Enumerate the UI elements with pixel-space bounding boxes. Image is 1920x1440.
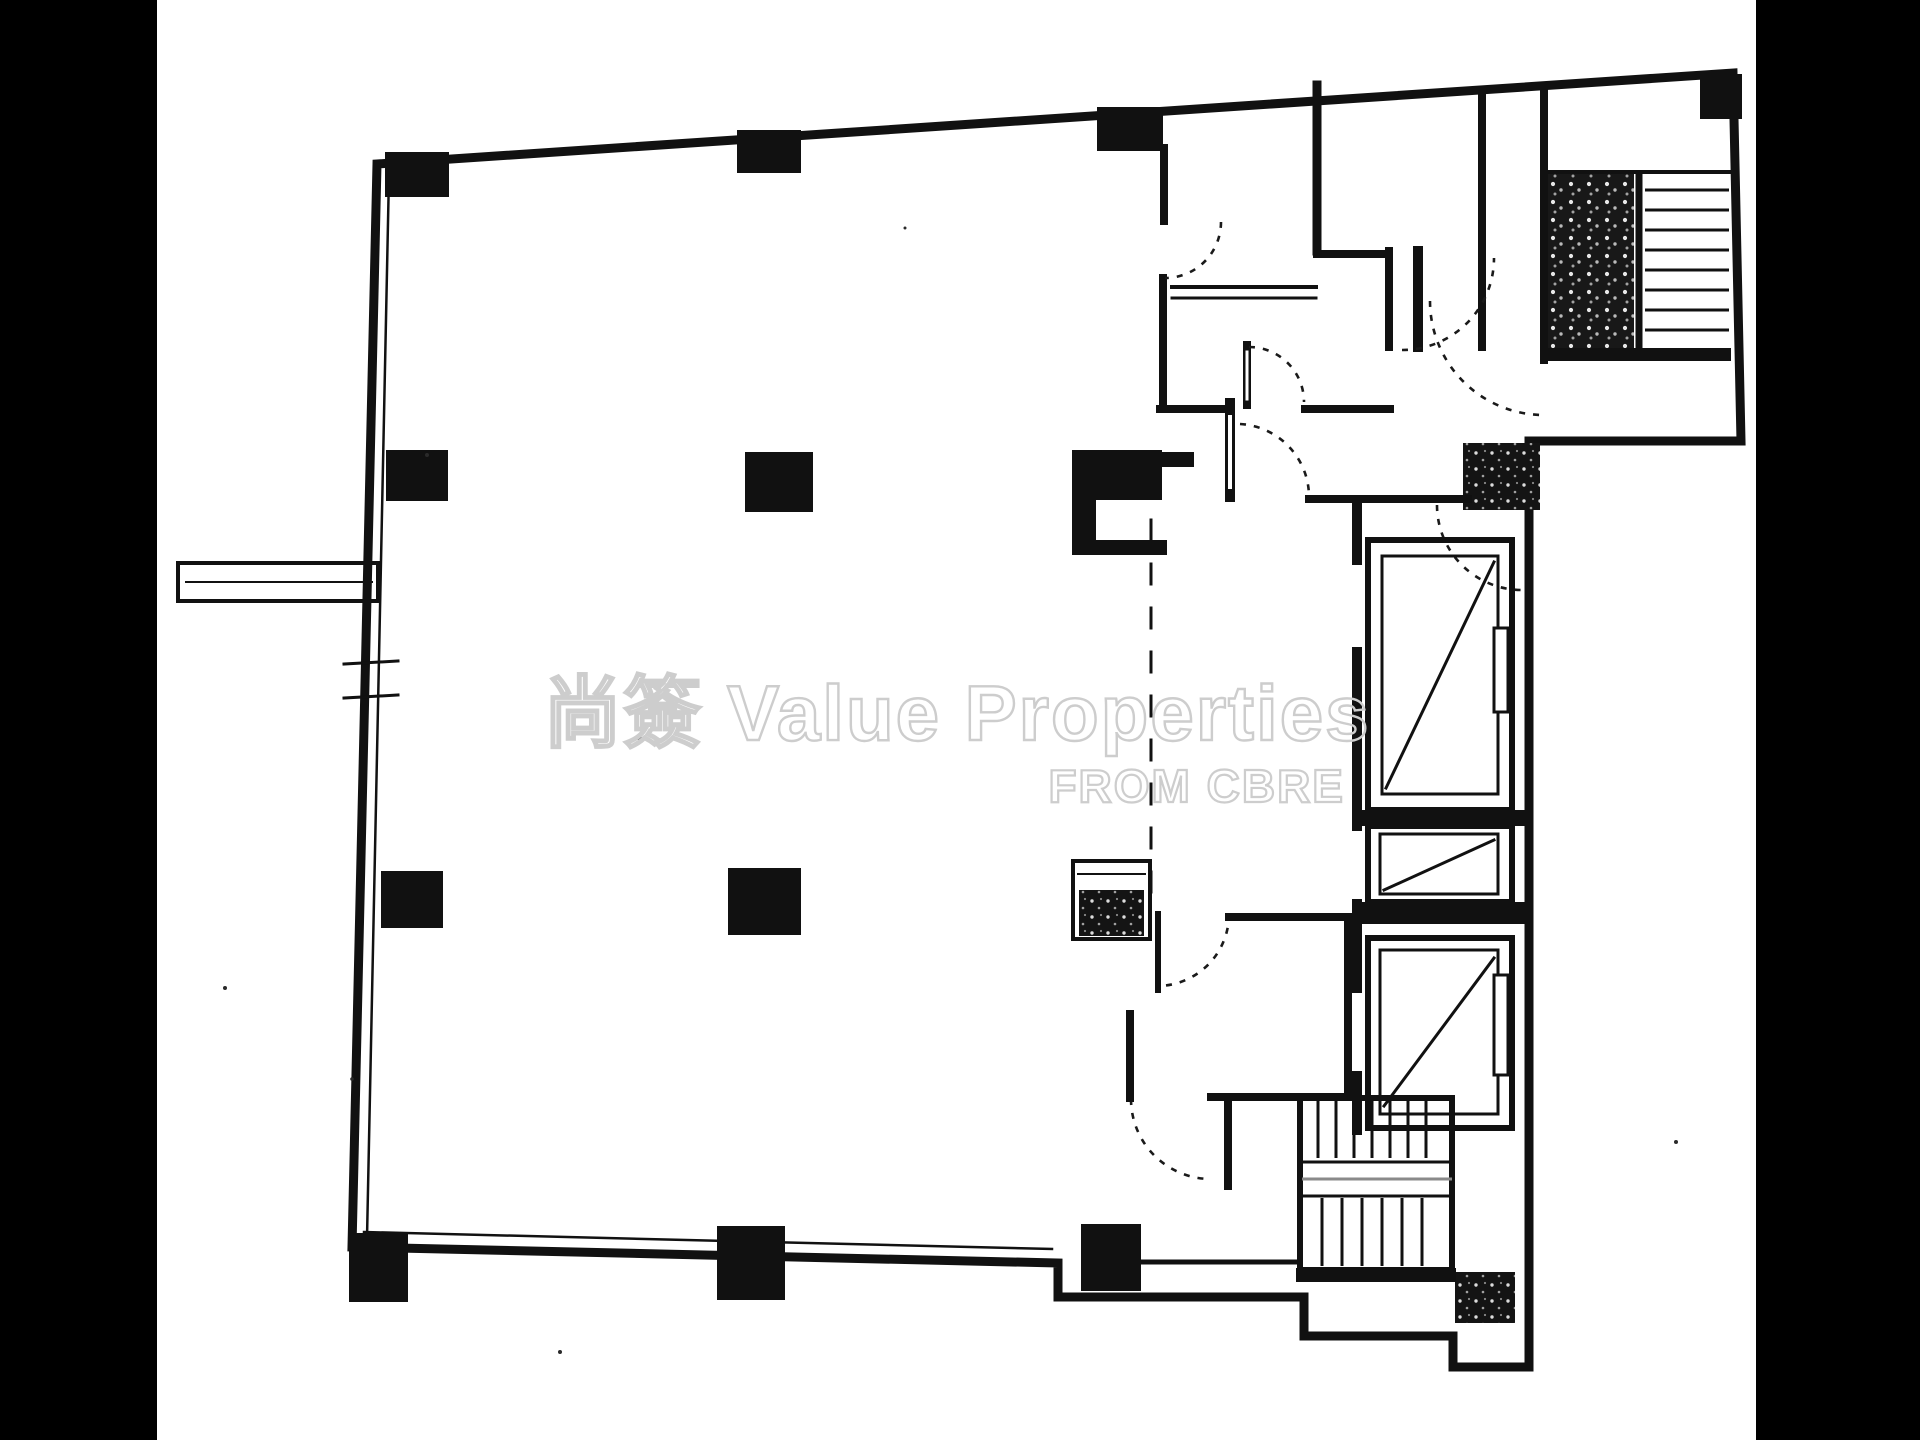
column [728, 868, 801, 935]
door-arc [1249, 347, 1304, 402]
elevator-diagonal [1384, 958, 1494, 1106]
elevator-counterweight [1494, 628, 1508, 712]
stair-bottom-wall [1545, 348, 1731, 361]
stair-treads-lower [1322, 1198, 1422, 1266]
stair-flight-hatched [1548, 174, 1634, 350]
wall-stub [1150, 452, 1194, 467]
scan-noise [223, 227, 1678, 1355]
elevator-diagonal [1386, 562, 1494, 788]
elevator-bank [1357, 500, 1526, 1130]
wall-tick [344, 695, 398, 698]
upper-suite-walls [1160, 85, 1544, 499]
column [349, 1233, 408, 1302]
door-arc [1131, 1099, 1211, 1179]
scanned-floor-plan-page: 尚簽 Value Properties FROM CBRE [0, 0, 1920, 1440]
wall-stub [1072, 540, 1167, 555]
stair-treads [1645, 190, 1729, 330]
column [1700, 74, 1742, 119]
stair-bottom-wall [1296, 1268, 1456, 1282]
column [385, 152, 449, 197]
lobby-corridor [1073, 520, 1352, 1262]
duct-box [1073, 861, 1150, 939]
stairwell-top-right [1545, 172, 1732, 361]
elevator-1 [1368, 540, 1512, 810]
column [737, 130, 801, 173]
column [1097, 107, 1163, 151]
door-arc [1165, 222, 1221, 278]
watermark-subtitle: FROM CBRE [1048, 760, 1345, 812]
door-arc [1157, 914, 1229, 986]
elevator-diagonal [1384, 840, 1494, 890]
column [717, 1226, 785, 1300]
watermark: 尚簽 Value Properties FROM CBRE [544, 669, 1371, 812]
wall-tick [344, 661, 398, 664]
column [386, 450, 448, 501]
right-scan-bar [1756, 0, 1920, 1440]
door-arc [1430, 301, 1544, 415]
wall-stub [1072, 450, 1096, 554]
column [745, 452, 813, 512]
left-scan-bar [0, 0, 157, 1440]
elevator-counterweight [1494, 975, 1508, 1075]
elevator-2 [1368, 826, 1512, 902]
entrance-canopy [178, 563, 378, 601]
column [1081, 1224, 1141, 1291]
column-hatched [1463, 443, 1540, 510]
watermark-brand: 尚簽 Value Properties [544, 669, 1371, 757]
floor-plan-svg: 尚簽 Value Properties FROM CBRE [0, 0, 1920, 1440]
column-hatched [1455, 1272, 1515, 1323]
shaft-divider [1357, 902, 1526, 924]
column [381, 871, 443, 928]
door-arc [1240, 424, 1309, 497]
